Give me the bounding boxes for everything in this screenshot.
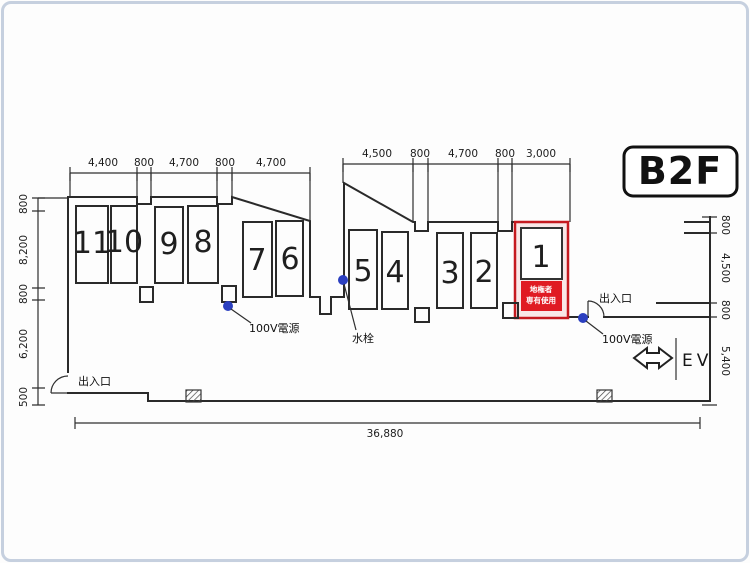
dim-label: 800 [410, 148, 430, 160]
hatched-column [597, 390, 612, 402]
leader-line [586, 321, 603, 334]
leader-line [231, 309, 251, 323]
dim-label: 800 [18, 284, 30, 304]
dim-label: 8,200 [18, 235, 30, 265]
elevator-label: EV [682, 351, 712, 371]
dimension-right: 800 4,500 800 5,400 [702, 215, 731, 405]
stall-number: 5 [353, 254, 372, 289]
dim-label: 4,700 [169, 157, 199, 169]
floor-badge-label: B2F [638, 149, 722, 193]
wall-right-openings [657, 222, 710, 303]
dim-label: 800 [719, 215, 731, 235]
column-box [140, 287, 153, 302]
stall-number: 1 [531, 240, 550, 275]
column-box [222, 286, 236, 302]
stall-number: 10 [105, 225, 143, 260]
water-tap-label: 水栓 [352, 331, 374, 345]
dim-label: 4,500 [362, 148, 392, 160]
reserved-stall-text-line2: 専有使用 [526, 295, 556, 305]
stall-number: 3 [440, 256, 459, 291]
dimension-bottom: 36,880 [75, 417, 700, 440]
double-arrow-icon [634, 348, 672, 368]
water-tap-dot [338, 275, 348, 285]
dimension-left: 800 8,200 800 6,200 500 [18, 194, 68, 407]
power-label-left: 100V電源 [249, 321, 300, 335]
dim-label: 4,400 [88, 157, 118, 169]
stall-number: 4 [385, 255, 404, 290]
dim-label: 800 [719, 300, 731, 320]
door-arc-bottom-left [51, 376, 68, 393]
dim-label: 3,000 [526, 148, 556, 160]
dim-label: 800 [215, 157, 235, 169]
dim-label: 6,200 [18, 329, 30, 359]
floor-plan-drawing: B2F 4,400 800 4,700 800 4,700 4,500 800 … [0, 0, 750, 563]
stall-number: 7 [247, 243, 266, 278]
dim-label: 36,880 [367, 428, 404, 440]
dimension-top-left: 4,400 800 4,700 800 4,700 [70, 157, 310, 221]
floor-badge: B2F [624, 147, 737, 196]
dimension-top-middle: 4,500 800 4,700 800 3,000 [343, 148, 570, 222]
dim-label: 800 [495, 148, 515, 160]
dim-label: 500 [18, 387, 30, 407]
column-box [415, 308, 429, 322]
stall-number: 6 [280, 242, 299, 277]
hatched-column [186, 390, 201, 402]
dim-label: 4,700 [448, 148, 478, 160]
stall-number: 2 [474, 255, 493, 290]
dim-label: 4,500 [719, 253, 731, 283]
entrance-label-right: 出入口 [599, 291, 632, 305]
entrance-label-bottom-left: 出入口 [78, 374, 111, 388]
dim-label: 800 [134, 157, 154, 169]
reserved-stall-text-line1: 地権者 [530, 284, 553, 294]
power-label-right: 100V電源 [602, 332, 653, 346]
stall-number: 9 [159, 227, 178, 262]
dim-label: 5,400 [719, 346, 731, 376]
floor-plan-page: B2F 4,400 800 4,700 800 4,700 4,500 800 … [0, 0, 750, 563]
dim-label: 4,700 [256, 157, 286, 169]
parking-stall-1-reserved: 1 地権者 専有使用 [515, 222, 568, 318]
dim-label: 800 [18, 194, 30, 214]
stall-number: 8 [193, 225, 212, 260]
